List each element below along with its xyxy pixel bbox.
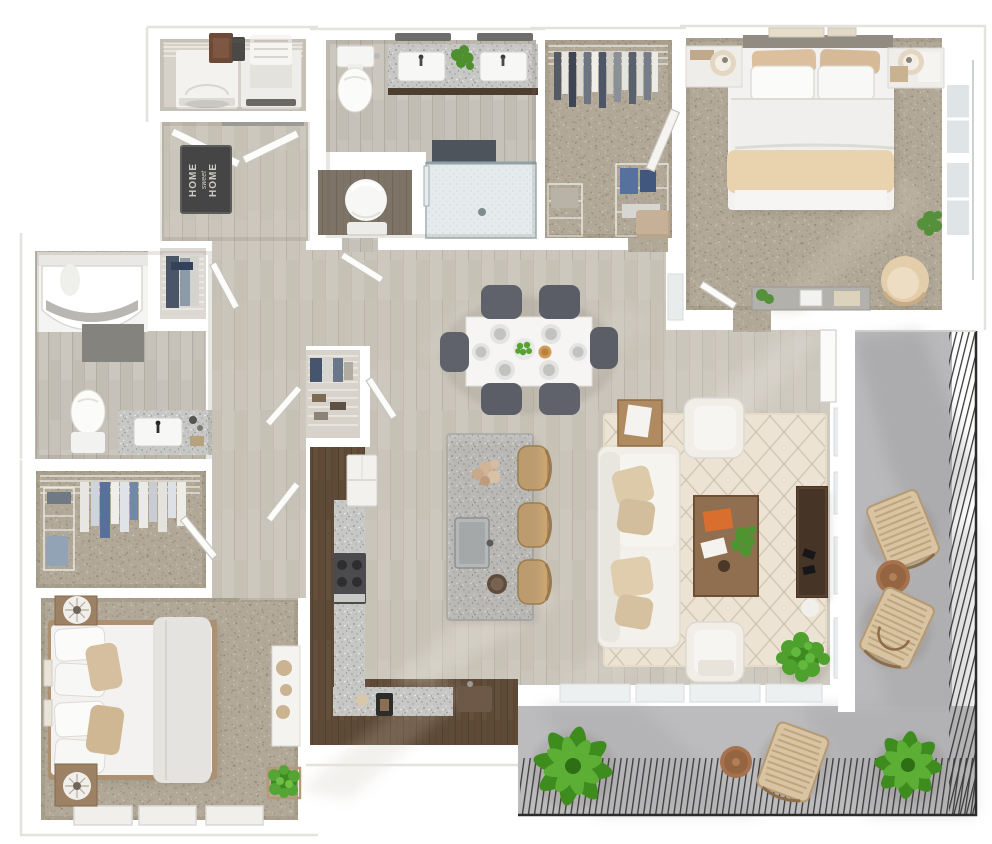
svg-text:HOME: HOME bbox=[188, 163, 199, 197]
svg-text:HOME: HOME bbox=[208, 163, 219, 197]
svg-text:sweet: sweet bbox=[201, 170, 208, 189]
